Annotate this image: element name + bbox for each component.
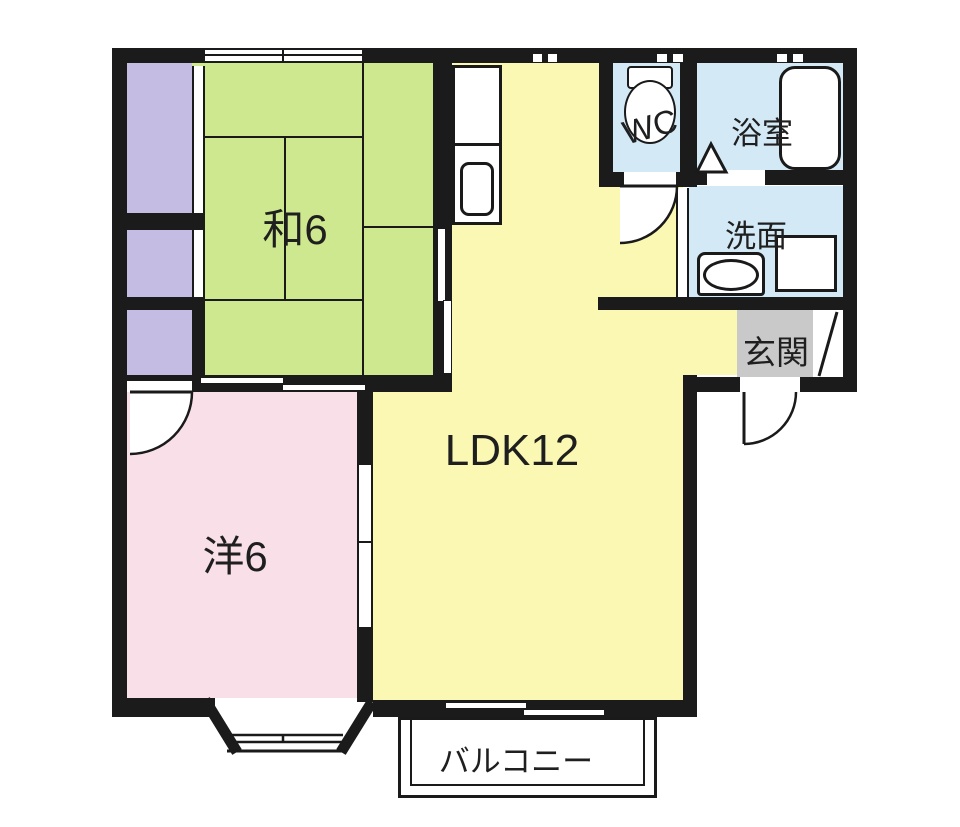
room-label-washitsu: 和6 xyxy=(215,196,375,257)
floorplan-canvas: 和6 洋6 LDK12 WC 浴室 洗面 玄関 バルコニー xyxy=(0,0,960,827)
room-label-entrance: 玄関 xyxy=(716,326,836,374)
room-label-ldk: LDK12 xyxy=(412,426,612,476)
room-label-washroom: 洗面 xyxy=(696,211,816,256)
bay-window-diagonal-right xyxy=(341,702,372,752)
room-label-balcony: バルコニー xyxy=(416,736,616,781)
room-label-bathroom: 浴室 xyxy=(702,108,822,153)
bay-window-diagonal-left xyxy=(205,700,237,752)
room-label-youshitsu: 洋6 xyxy=(155,523,315,584)
